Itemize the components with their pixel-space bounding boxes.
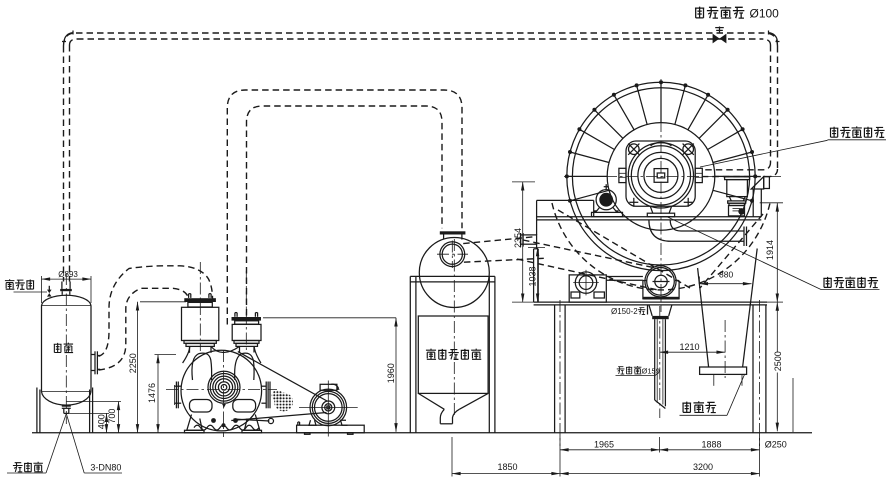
svg-text:2250: 2250	[128, 353, 138, 373]
svg-text:3-DN80: 3-DN80	[90, 462, 121, 472]
svg-text:2354: 2354	[513, 228, 523, 248]
svg-text:Ø150-2: Ø150-2	[611, 307, 638, 316]
svg-text:1038: 1038	[528, 266, 538, 286]
svg-text:400: 400	[96, 414, 106, 429]
svg-text:1210: 1210	[680, 342, 700, 352]
svg-text:1476: 1476	[147, 383, 157, 403]
svg-text:1888: 1888	[702, 439, 722, 449]
svg-text:880: 880	[719, 270, 733, 280]
svg-text:700: 700	[107, 409, 117, 424]
svg-text:Ø893: Ø893	[58, 270, 78, 279]
svg-text:1850: 1850	[498, 462, 518, 472]
svg-text:1914: 1914	[765, 240, 775, 260]
svg-text:3200: 3200	[693, 462, 713, 472]
svg-text:Ø100: Ø100	[750, 7, 780, 21]
svg-text:1965: 1965	[594, 439, 614, 449]
svg-text:1960: 1960	[386, 363, 396, 383]
svg-text:2500: 2500	[773, 351, 783, 371]
svg-text:Ø250: Ø250	[765, 440, 787, 450]
